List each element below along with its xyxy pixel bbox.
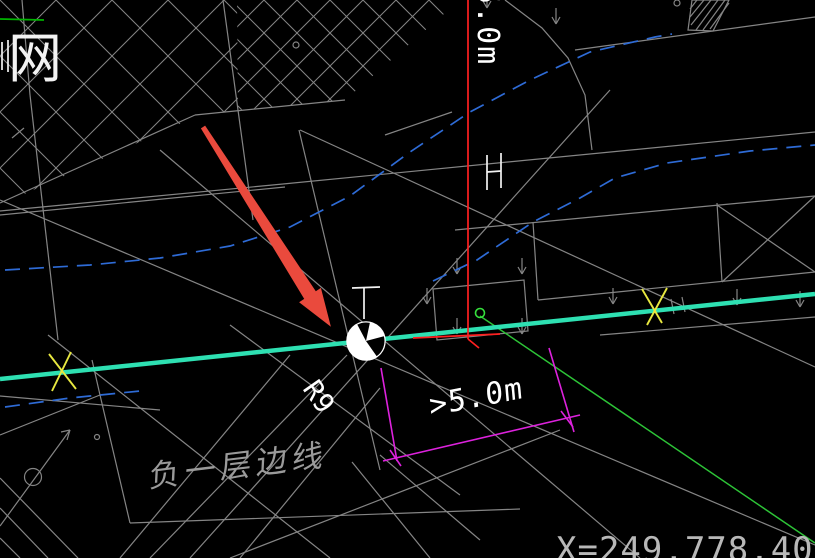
- hatch-region-lat1: [0, 0, 815, 558]
- cyan-boundary-line: [0, 294, 815, 379]
- coordinate-readout: X=249,778.405: [556, 533, 815, 558]
- net-label: 网: [8, 32, 62, 86]
- cad-canvas: [0, 0, 815, 558]
- cad-viewport: 网 5.0m >5.0m R9 负一层边线 X=249,778.405: [0, 0, 815, 558]
- survey-point-symbol: [347, 322, 385, 360]
- vertical-dimension-label: 5.0m: [472, 0, 502, 66]
- annotation-arrow: [201, 126, 331, 327]
